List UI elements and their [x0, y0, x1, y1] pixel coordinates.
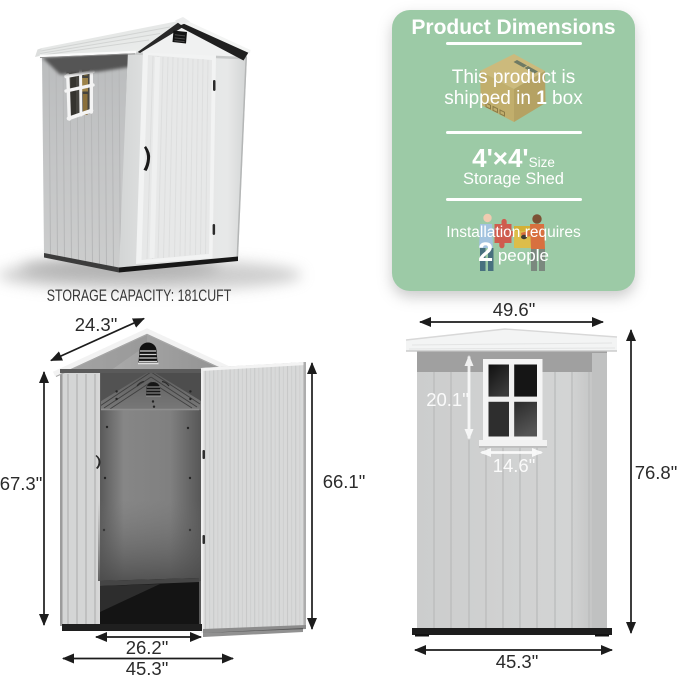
svg-text:24.3": 24.3"	[75, 314, 118, 335]
svg-text:49.6": 49.6"	[493, 300, 536, 320]
svg-text:76.8": 76.8"	[635, 462, 678, 483]
svg-text:45.3": 45.3"	[126, 658, 169, 678]
svg-text:45.3": 45.3"	[496, 651, 539, 672]
svg-text:67.3": 67.3"	[0, 473, 42, 494]
svg-text:26.2": 26.2"	[126, 637, 169, 658]
svg-text:14.6": 14.6"	[493, 455, 536, 476]
svg-text:20.1": 20.1"	[426, 389, 469, 410]
svg-text:66.1": 66.1"	[323, 471, 366, 492]
